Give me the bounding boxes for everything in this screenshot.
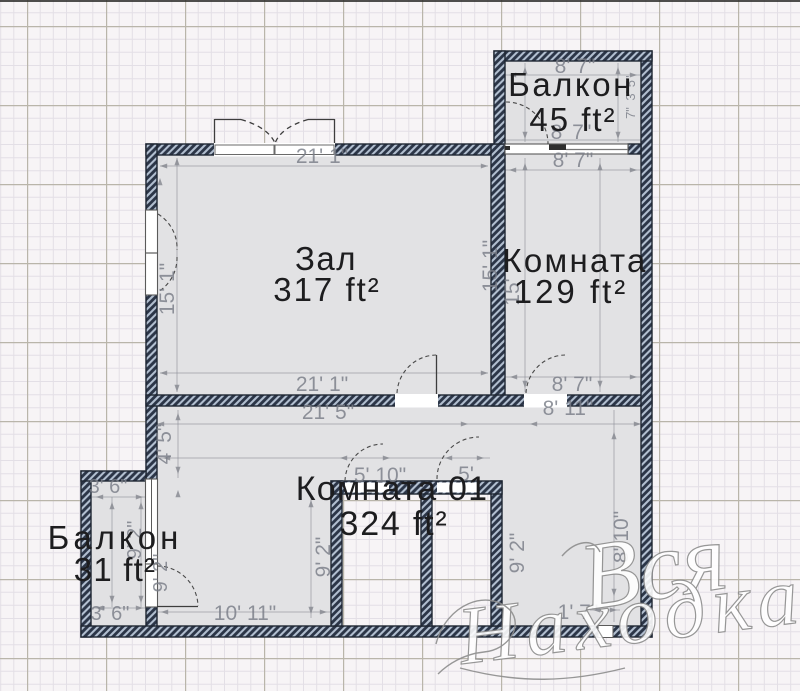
svg-text:129 ft²: 129 ft²: [514, 273, 629, 310]
svg-text:8' 7": 8' 7": [553, 149, 594, 172]
svg-text:3' 6": 3' 6": [91, 603, 130, 625]
svg-text:Балкон: Балкон: [508, 66, 634, 103]
svg-text:45 ft²: 45 ft²: [529, 101, 616, 138]
svg-text:8' 11": 8' 11": [543, 397, 594, 420]
svg-text:21' 1": 21' 1": [296, 373, 348, 396]
svg-text:4' 5": 4' 5": [153, 424, 176, 465]
svg-text:317 ft²: 317 ft²: [273, 271, 381, 308]
svg-text:21' 5": 21' 5": [302, 401, 354, 424]
svg-text:10' 11": 10' 11": [214, 602, 276, 625]
svg-text:7": 7": [623, 107, 638, 119]
svg-text:21' 1": 21' 1": [296, 145, 348, 168]
svg-text:8' 7": 8' 7": [552, 373, 593, 396]
svg-text:9' 2": 9' 2": [312, 537, 335, 578]
svg-text:3' 6": 3' 6": [89, 476, 128, 498]
svg-text:15' 1": 15' 1": [479, 240, 502, 292]
svg-text:324 ft²: 324 ft²: [340, 505, 449, 543]
svg-text:Комната 01: Комната 01: [296, 470, 488, 508]
svg-text:9' 2": 9' 2": [506, 533, 529, 574]
svg-text:31 ft²: 31 ft²: [74, 551, 156, 588]
svg-text:15' 1": 15' 1": [156, 263, 179, 315]
